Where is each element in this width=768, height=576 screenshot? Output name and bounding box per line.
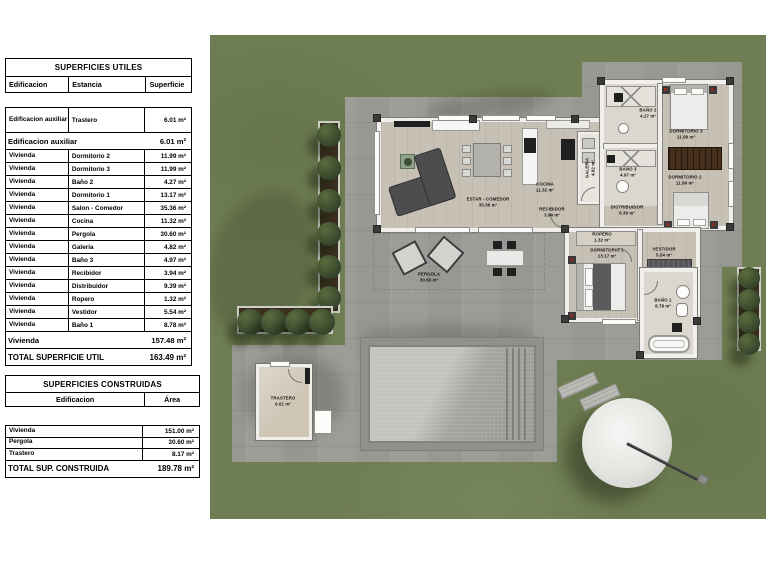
table-cell: Dormitorio 1 [68, 189, 144, 201]
table-cell: 8.78 m² [144, 319, 191, 331]
column-header-area: Área [144, 393, 199, 406]
row-label: Edificacion auxiliar [6, 137, 77, 146]
table-row: ViviendaRopero1.32 m² [5, 293, 192, 306]
table-row: Vivienda157.48 m² [5, 332, 192, 349]
room-area: 4.82 m² [591, 158, 596, 178]
table-cell: Vivienda [6, 267, 68, 279]
table-cell: Vivienda [6, 306, 68, 318]
row-label: TOTAL SUP. CONSTRUIDA [6, 464, 109, 473]
table-body: Vivienda151.00 m²Pergola30.60 m²Trastero… [5, 425, 200, 478]
table-row: ViviendaSalon - Comedor35.36 m² [5, 202, 192, 215]
room-area: 9.39 m² [611, 211, 644, 216]
table-cell: 4.82 m² [144, 241, 191, 253]
room-label-recibidor: RECIBIDOR3.94 m² [539, 208, 564, 219]
row-value: 163.49 m² [150, 353, 191, 362]
room-label-cocina: COCINA11.32 m² [536, 183, 554, 194]
table-cell: 9.39 m² [144, 280, 191, 292]
table-cell: Baño 2 [68, 176, 144, 188]
table-cell: Edificacion auxiliar [6, 108, 68, 132]
table-cell: Baño 3 [68, 254, 144, 266]
table-superficies-construidas: SUPERFICIES CONSTRUIDAS Edificacion Área… [5, 375, 200, 478]
table-cell: Vivienda [6, 241, 68, 253]
table-gap [5, 407, 200, 425]
room-label-galeria: GALERIA4.82 m² [586, 158, 597, 178]
table-cell: Recibidor [68, 267, 144, 279]
table-header: Edificacion Estancia Superficie [5, 77, 192, 93]
room-area: 6.01 m² [271, 402, 296, 407]
table-row: ViviendaDormitorio 211.99 m² [5, 150, 192, 163]
table-superficies-utiles: SUPERFICIES UTILES Edificacion Estancia … [5, 58, 192, 366]
room-area: 4.27 m² [639, 114, 656, 119]
table-row: ViviendaDormitorio 311.99 m² [5, 163, 192, 176]
room-label-estar-comedor: ESTAR - COMEDOR35.36 m² [467, 198, 510, 209]
table-cell: Vivienda [6, 176, 68, 188]
row-value: 6.01 m² [160, 137, 191, 146]
table-row: Edificacion auxiliarTrastero6.01 m² [5, 108, 192, 133]
table-cell: 8.17 m² [142, 449, 199, 460]
table-header: Edificacion Área [5, 393, 200, 407]
table-cell: Cocina [68, 215, 144, 227]
table-cell: Vivienda [6, 202, 68, 214]
table-cell: 1.32 m² [144, 293, 191, 305]
table-title: SUPERFICIES CONSTRUIDAS [5, 375, 200, 393]
table-cell: Baño 1 [68, 319, 144, 331]
table-cell: 4.97 m² [144, 254, 191, 266]
table-cell: Pergola [6, 438, 142, 449]
table-row: ViviendaCocina11.32 m² [5, 215, 192, 228]
table-cell: 3.94 m² [144, 267, 191, 279]
table-cell: Distribuidor [68, 280, 144, 292]
room-label-dormitorio-1: DORMITORIO 113.17 m² [590, 249, 623, 260]
row-value: 157.48 m² [151, 336, 191, 345]
room-label-dormitorio-3: DORMITORIO 311.99 m² [669, 130, 702, 141]
table-row: ViviendaBaño 18.78 m² [5, 319, 192, 332]
table-cell: 30.60 m² [142, 438, 199, 449]
room-area: 8.78 m² [654, 304, 671, 309]
table-cell: Trastero [68, 108, 144, 132]
table-gap [5, 93, 192, 107]
table-cell: 35.36 m² [144, 202, 191, 214]
page: { "colors":{ "grass":"#6f7e52","paving":… [0, 0, 768, 576]
table-row: ViviendaGaleria4.82 m² [5, 241, 192, 254]
table-cell: 151.00 m² [142, 426, 199, 437]
room-area: 13.17 m² [590, 254, 623, 259]
room-label-trastero: TRASTERO6.01 m² [271, 397, 296, 408]
table-cell: 11.99 m² [144, 163, 191, 175]
table-cell: 4.27 m² [144, 176, 191, 188]
room-area: 30.60 m² [418, 278, 440, 283]
table-row: ViviendaVestidor5.54 m² [5, 306, 192, 319]
room-label-bano-2: BAÑO 24.27 m² [639, 109, 656, 120]
table-cell: Ropero [68, 293, 144, 305]
table-cell: 11.99 m² [144, 150, 191, 162]
column-header-edificacion: Edificacion [6, 393, 144, 406]
table-cell: 6.01 m² [144, 108, 191, 132]
column-header-estancia: Estancia [68, 77, 144, 92]
table-cell: Vivienda [6, 150, 68, 162]
table-cell: 13.17 m² [144, 189, 191, 201]
room-label-distribuidor: DISTRIBUIDOR9.39 m² [611, 206, 644, 217]
table-cell: Vivienda [6, 215, 68, 227]
room-area: 5.54 m² [652, 253, 675, 258]
site-plan: ESTAR - COMEDOR35.36 m²COCINA11.32 m²REC… [210, 35, 766, 519]
table-cell: 11.32 m² [144, 215, 191, 227]
room-area: 3.94 m² [539, 213, 564, 218]
table-row: ViviendaDormitorio 113.17 m² [5, 189, 192, 202]
table-cell: 5.54 m² [144, 306, 191, 318]
table-cell: Vivienda [6, 280, 68, 292]
table-cell: Vivienda [6, 319, 68, 331]
table-row: Pergola30.60 m² [5, 438, 200, 450]
room-area: 11.99 m² [668, 181, 701, 186]
row-value: 189.78 m² [158, 464, 199, 473]
table-cell: Vivienda [6, 254, 68, 266]
table-cell: Pergola [68, 228, 144, 240]
room-area: 11.99 m² [669, 135, 702, 140]
row-label: Vivienda [6, 336, 39, 345]
room-label-bano-3: BAÑO 34.97 m² [619, 168, 636, 179]
table-cell: Dormitorio 3 [68, 163, 144, 175]
table-row: Vivienda151.00 m² [5, 426, 200, 438]
plan-labels: ESTAR - COMEDOR35.36 m²COCINA11.32 m²REC… [210, 35, 766, 519]
table-row: Edificacion auxiliar6.01 m² [5, 133, 192, 150]
table-cell: Dormitorio 2 [68, 150, 144, 162]
table-total-row: TOTAL SUP. CONSTRUIDA189.78 m² [5, 461, 200, 478]
table-title: SUPERFICIES UTILES [5, 58, 192, 77]
table-cell: Trastero [6, 449, 142, 460]
room-area: 4.97 m² [619, 173, 636, 178]
table-cell: Salon - Comedor [68, 202, 144, 214]
table-row: ViviendaBaño 34.97 m² [5, 254, 192, 267]
table-row: TOTAL SUPERFICIE UTIL163.49 m² [5, 349, 192, 366]
table-cell: Galeria [68, 241, 144, 253]
room-label-bano-1: BAÑO 18.78 m² [654, 299, 671, 310]
table-row: Trastero8.17 m² [5, 449, 200, 461]
room-area: 1.32 m² [592, 238, 612, 243]
table-row: ViviendaPergola30.60 m² [5, 228, 192, 241]
table-cell: Vivienda [6, 163, 68, 175]
room-label-ropero: ROPERO1.32 m² [592, 233, 612, 244]
room-label-vestidor: VESTIDOR5.54 m² [652, 248, 675, 259]
room-area: 11.32 m² [536, 188, 554, 193]
table-row: ViviendaRecibidor3.94 m² [5, 267, 192, 280]
table-row: ViviendaBaño 24.27 m² [5, 176, 192, 189]
table-cell: 30.60 m² [144, 228, 191, 240]
table-cell: Vivienda [6, 228, 68, 240]
table-body: Edificacion auxiliarTrastero6.01 m²Edifi… [5, 107, 192, 366]
table-cell: Vestidor [68, 306, 144, 318]
column-header-superficie: Superficie [145, 77, 191, 92]
table-row: ViviendaDistribuidor9.39 m² [5, 280, 192, 293]
column-header-edificacion: Edificacion [6, 77, 68, 92]
row-label: TOTAL SUPERFICIE UTIL [6, 353, 104, 362]
table-cell: Vivienda [6, 189, 68, 201]
room-label-dormitorio-2: DORMITORIO 211.99 m² [668, 176, 701, 187]
table-cell: Vivienda [6, 426, 142, 437]
table-cell: Vivienda [6, 293, 68, 305]
room-area: 35.36 m² [467, 203, 510, 208]
room-label-pergola: PERGOLA30.60 m² [418, 273, 440, 284]
